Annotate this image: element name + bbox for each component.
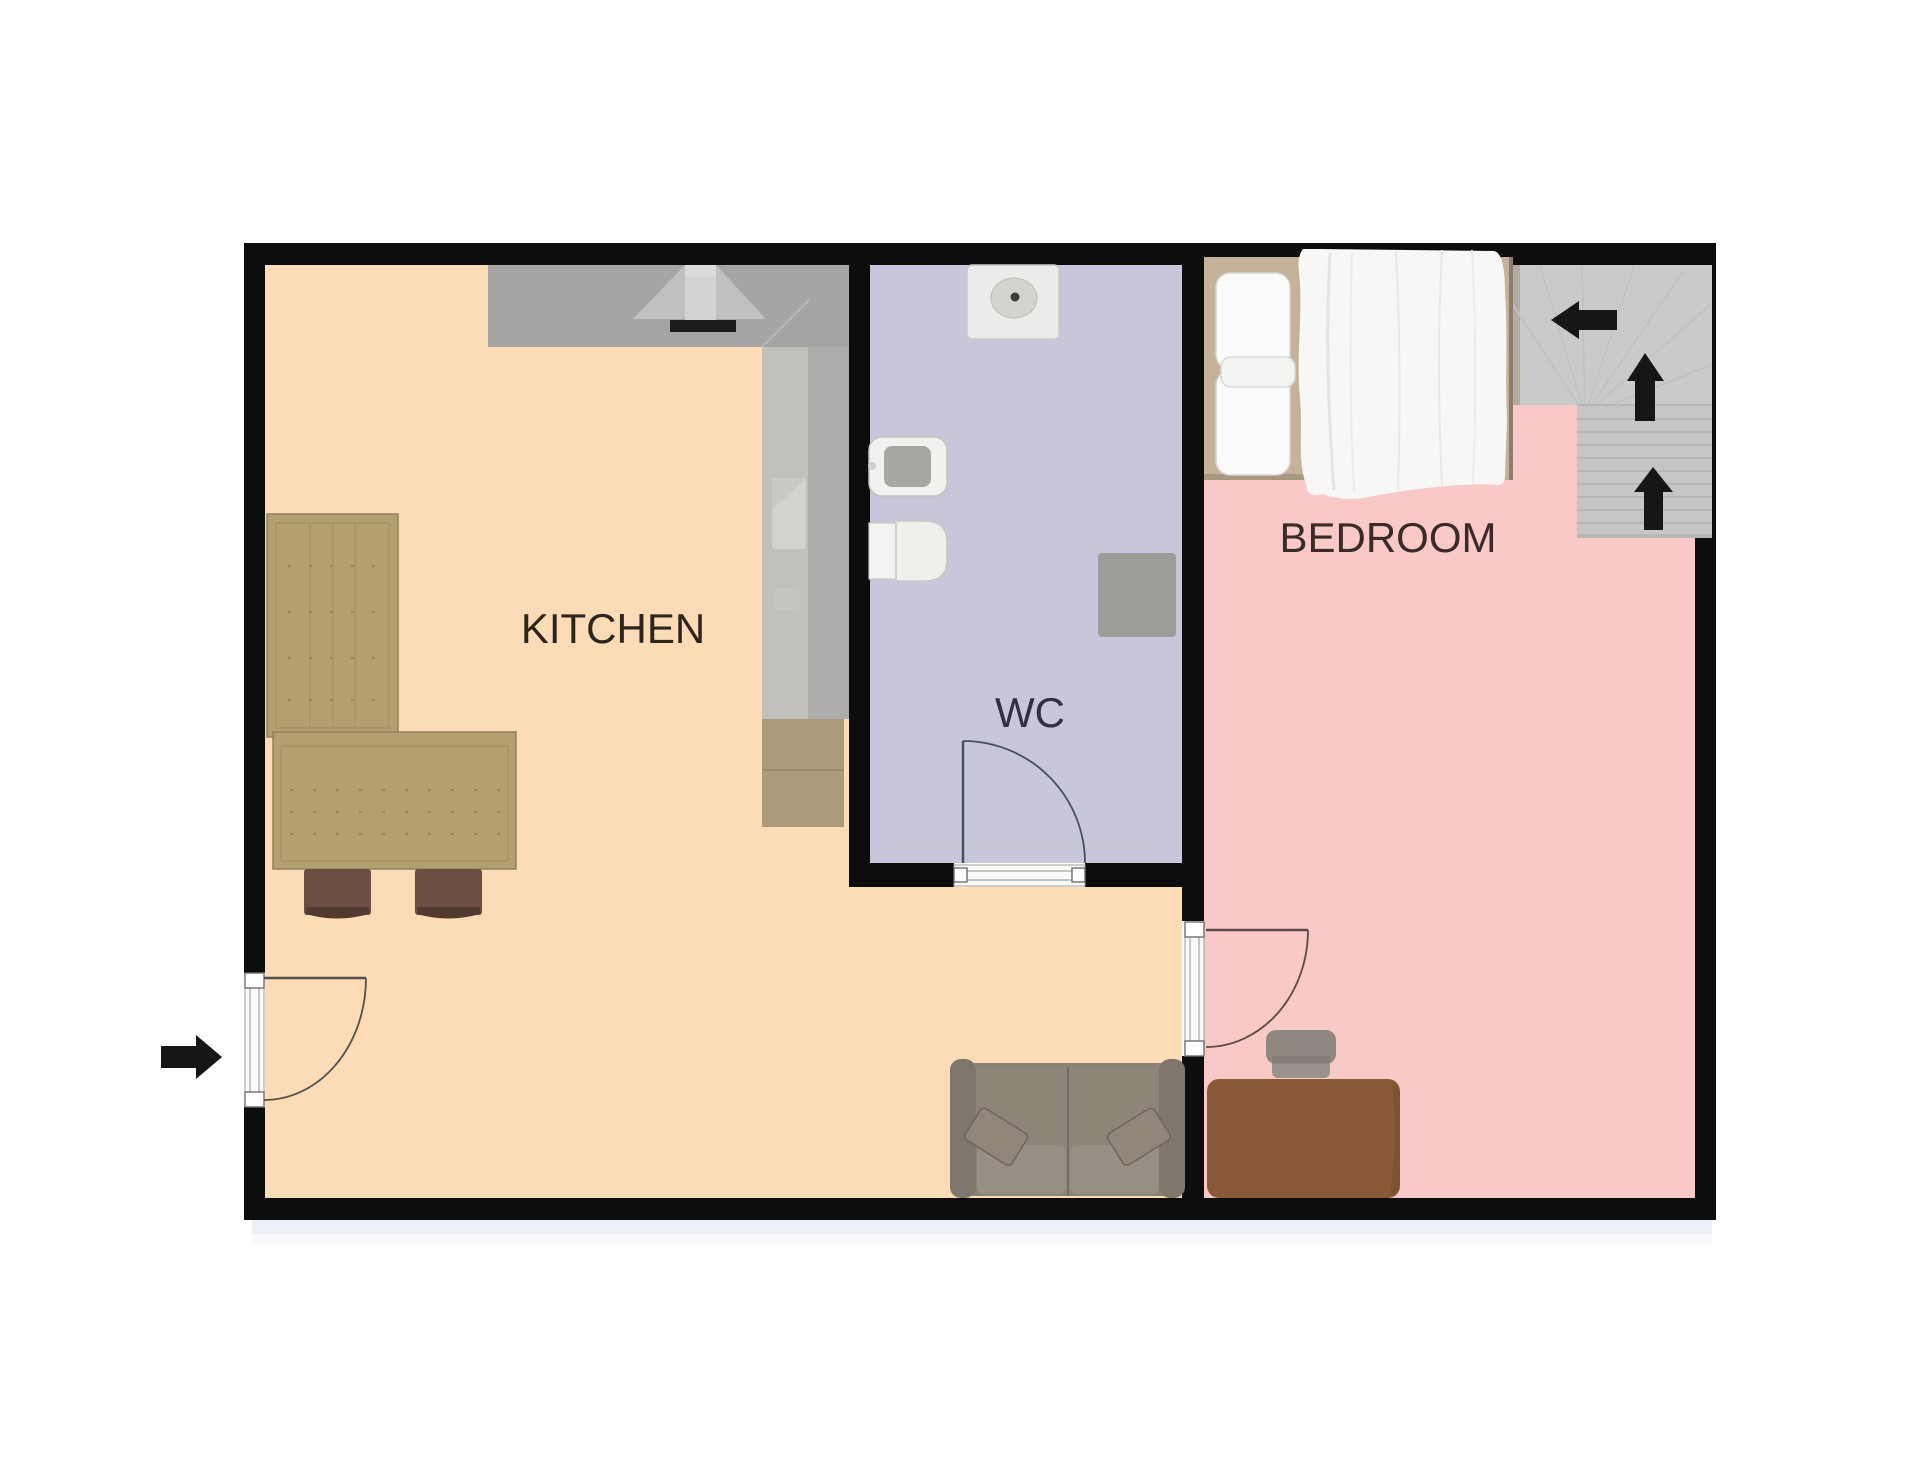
svg-text:BEDROOM: BEDROOM bbox=[1279, 514, 1496, 561]
svg-text:KITCHEN: KITCHEN bbox=[521, 605, 705, 652]
svg-text:WC: WC bbox=[995, 689, 1065, 736]
